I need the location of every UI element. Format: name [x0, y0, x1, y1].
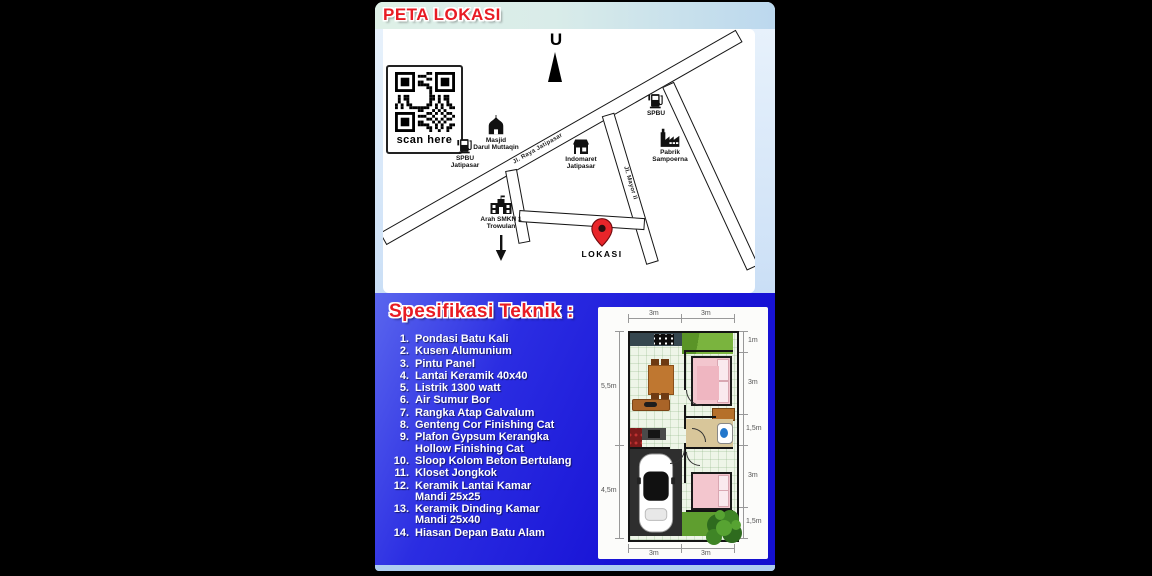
- spec-num: 2.: [383, 346, 409, 357]
- door-arc: [686, 390, 702, 406]
- down-arrow-icon: [495, 235, 507, 261]
- spec-item: 12.Keramik Lantai Kamar Mandi 25x25: [383, 481, 597, 504]
- spec-text: Kloset Jongkok: [415, 468, 597, 479]
- spec-text: Genteng Cor Finishing Cat: [415, 420, 597, 431]
- spec-num: 12.: [383, 481, 409, 504]
- spec-num: 7.: [383, 408, 409, 419]
- location-map: Jl. Raya Jatipasar Jl. Mayor II U scan h…: [383, 29, 755, 293]
- toilet-bowl: [720, 428, 728, 438]
- floor-plan: 3m 3m 5,5m 4,5m 1m 3m 1,5m 3m 1,5m 3m 3m: [598, 307, 768, 559]
- dim-right-1: 1m: [748, 337, 758, 344]
- spec-item: 1.Pondasi Batu Kali: [383, 334, 597, 345]
- sink-counter: [642, 428, 666, 440]
- spec-text: Keramik Dinding Kamar Mandi 25x40: [415, 504, 597, 527]
- location-pin-icon: [591, 218, 613, 247]
- spec-panel: Spesifikasi Teknik : 1.Pondasi Batu Kali…: [375, 293, 775, 565]
- landmark-label: Indomaret Jatipasar: [565, 156, 596, 171]
- spec-text: Kusen Alumunium: [415, 346, 597, 357]
- school-icon: [489, 195, 513, 215]
- spec-item: 10.Sloop Kolom Beton Bertulang: [383, 456, 597, 467]
- spec-item: 13.Keramik Dinding Kamar Mandi 25x40: [383, 504, 597, 527]
- dim-top-1: 3m: [649, 310, 659, 317]
- gas-pump-icon: [647, 90, 665, 109]
- spec-text: Pintu Panel: [415, 359, 597, 370]
- sofa: [632, 399, 670, 411]
- qr-code-icon: [395, 72, 455, 132]
- spec-text: Pondasi Batu Kali: [415, 334, 597, 345]
- spec-text: Sloop Kolom Beton Bertulang: [415, 456, 597, 467]
- landmark-indomaret: Indomaret Jatipasar: [551, 137, 611, 171]
- north-arrow-icon: [548, 52, 562, 82]
- spec-text: Lantai Keramik 40x40: [415, 371, 597, 382]
- door-arc: [686, 452, 700, 466]
- spec-item: 2.Kusen Alumunium: [383, 346, 597, 357]
- factory-icon: [658, 127, 682, 148]
- spec-text: Hiasan Depan Batu Alam: [415, 528, 597, 539]
- car: [636, 452, 676, 534]
- store-icon: [571, 137, 591, 155]
- location-marker: LOKASI: [572, 218, 632, 259]
- door-arc: [670, 449, 685, 464]
- dim-right-2: 3m: [748, 379, 758, 386]
- landmark-label: Masjid Darul Muttaqin: [473, 137, 519, 152]
- north-label: U: [543, 30, 569, 50]
- landmark-label: Pabrik Sampoerna: [652, 149, 687, 164]
- spec-text: Listrik 1300 watt: [415, 383, 597, 394]
- flyer: PETA LOKASI Jl. Raya Jatipasar Jl. Mayor…: [375, 2, 775, 571]
- spec-list: 1.Pondasi Batu Kali 2.Kusen Alumunium 3.…: [383, 334, 597, 540]
- spec-text: Keramik Lantai Kamar Mandi 25x25: [415, 481, 597, 504]
- bush: [700, 503, 746, 551]
- spec-num: 14.: [383, 528, 409, 539]
- dim-bottom-1: 3m: [649, 550, 659, 557]
- spec-num: 5.: [383, 383, 409, 394]
- dim-right-3: 1,5m: [746, 425, 762, 432]
- spec-item: 9.Plafon Gypsum Kerangka Hollow Finishin…: [383, 432, 597, 455]
- landmark-pabrik-sampoerna: Pabrik Sampoerna: [640, 127, 700, 164]
- dim-left-1: 5,5m: [601, 383, 617, 390]
- spec-item: 11.Kloset Jongkok: [383, 468, 597, 479]
- spec-num: 1.: [383, 334, 409, 345]
- landmark-smkn: Arah SMKN 1 Trowulan: [471, 195, 531, 261]
- dining-table: [648, 365, 674, 395]
- landmark-spbu-2: SPBU: [626, 90, 686, 117]
- landmark-label: SPBU: [647, 110, 665, 117]
- bottom-frame-strip: [375, 565, 775, 571]
- dim-right-4: 3m: [748, 472, 758, 479]
- landmark-masjid: Masjid Darul Muttaqin: [466, 115, 526, 152]
- dim-left-2: 4,5m: [601, 487, 617, 494]
- spec-num: 6.: [383, 395, 409, 406]
- spec-num: 4.: [383, 371, 409, 382]
- spec-num: 13.: [383, 504, 409, 527]
- spec-item: 14.Hiasan Depan Batu Alam: [383, 528, 597, 539]
- toilet: [717, 423, 733, 444]
- dim-top-2: 3m: [701, 310, 711, 317]
- page-background: { "header": { "title": "PETA LOKASI" }, …: [0, 0, 1152, 576]
- spec-num: 11.: [383, 468, 409, 479]
- dim-right-5: 1,5m: [746, 518, 762, 525]
- spec-num: 10.: [383, 456, 409, 467]
- spec-num: 3.: [383, 359, 409, 370]
- spec-text: Rangka Atap Galvalum: [415, 408, 597, 419]
- spec-item: 6.Air Sumur Bor: [383, 395, 597, 406]
- spec-num: 8.: [383, 420, 409, 431]
- spec-item: 8.Genteng Cor Finishing Cat: [383, 420, 597, 431]
- header-banner: PETA LOKASI: [375, 2, 775, 29]
- spec-text: Plafon Gypsum Kerangka Hollow Finishing …: [415, 432, 597, 455]
- spec-item: 5.Listrik 1300 watt: [383, 383, 597, 394]
- page-title: PETA LOKASI: [383, 5, 501, 25]
- spec-item: 7.Rangka Atap Galvalum: [383, 408, 597, 419]
- landmark-label: SPBU Jatipasar: [451, 155, 480, 170]
- landmark-label: Arah SMKN 1 Trowulan: [480, 216, 521, 231]
- spec-heading: Spesifikasi Teknik :: [389, 301, 574, 323]
- spec-num: 9.: [383, 432, 409, 455]
- mosque-icon: [485, 115, 507, 136]
- spec-text: Air Sumur Bor: [415, 395, 597, 406]
- spec-item: 4.Lantai Keramik 40x40: [383, 371, 597, 382]
- location-label: LOKASI: [581, 249, 622, 259]
- stove: [654, 334, 674, 345]
- spec-item: 3.Pintu Panel: [383, 359, 597, 370]
- dim-bottom-2: 3m: [701, 550, 711, 557]
